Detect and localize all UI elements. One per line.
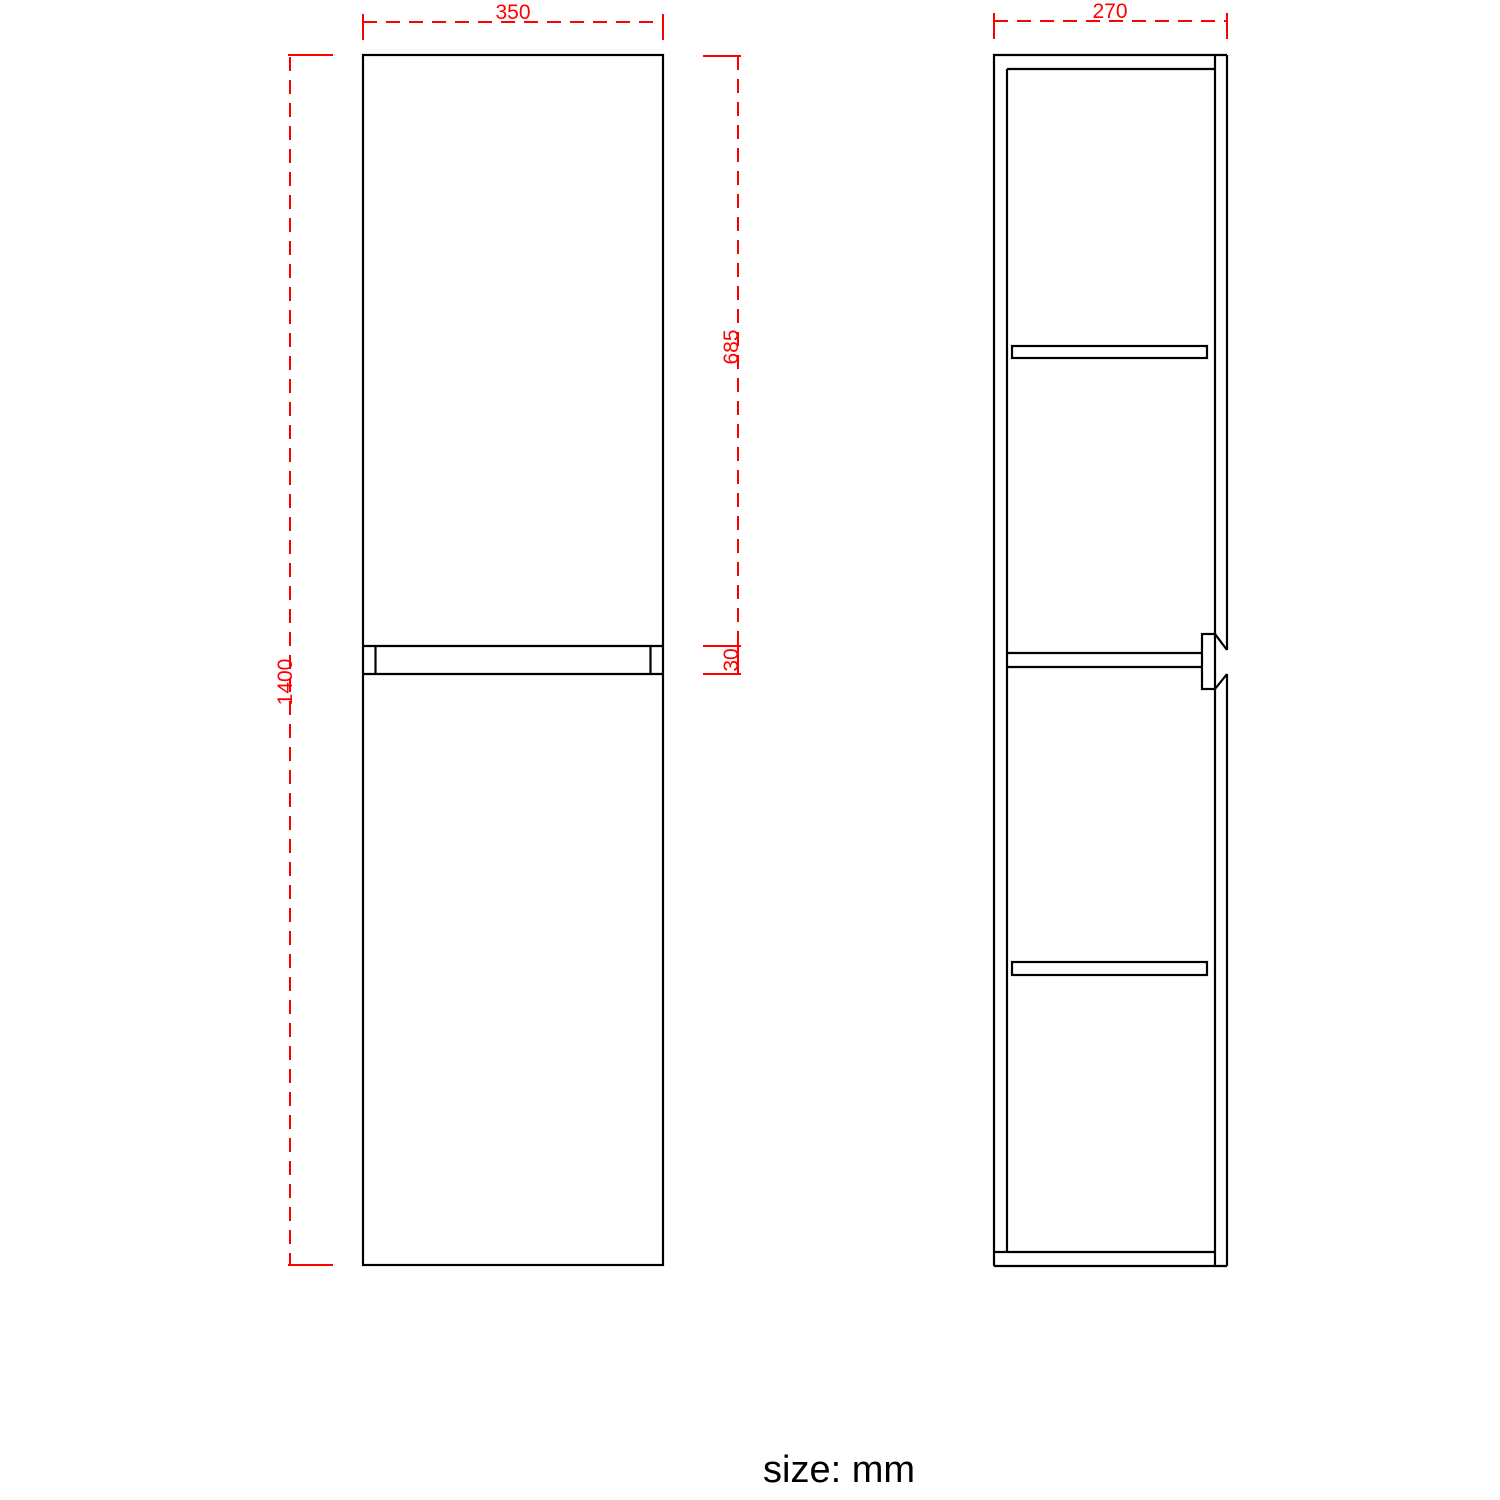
units-label: size: mm (763, 1449, 915, 1491)
front-view (363, 55, 663, 1265)
side-view (994, 55, 1227, 1266)
front-height-dim-text: 1400 (274, 659, 297, 706)
cabinet-dimension-drawing: 350 270 1400 685 30 size: mm (0, 0, 1500, 1500)
side-mid-divider-board (1007, 653, 1202, 667)
door-gap-dim-text: 30 (720, 648, 743, 671)
upper-door-height-dim-text: 685 (720, 329, 743, 364)
side-mid-divider-front-rail (1202, 634, 1215, 689)
side-bottom-door-chamfer (1215, 674, 1227, 689)
side-outline-left-top (994, 55, 1227, 1266)
side-depth-dim-text: 270 (1092, 0, 1127, 23)
side-top-door-chamfer (1215, 634, 1227, 650)
dimension-labels: 350 270 1400 685 30 (274, 0, 1128, 705)
front-view-outline (363, 55, 663, 1265)
side-lower-shelf (1012, 962, 1207, 975)
technical-drawing-canvas: 350 270 1400 685 30 size: mm (0, 0, 1500, 1500)
side-upper-shelf (1012, 346, 1207, 358)
dimension-lines (288, 13, 1227, 1265)
front-width-dim-text: 350 (495, 1, 530, 24)
